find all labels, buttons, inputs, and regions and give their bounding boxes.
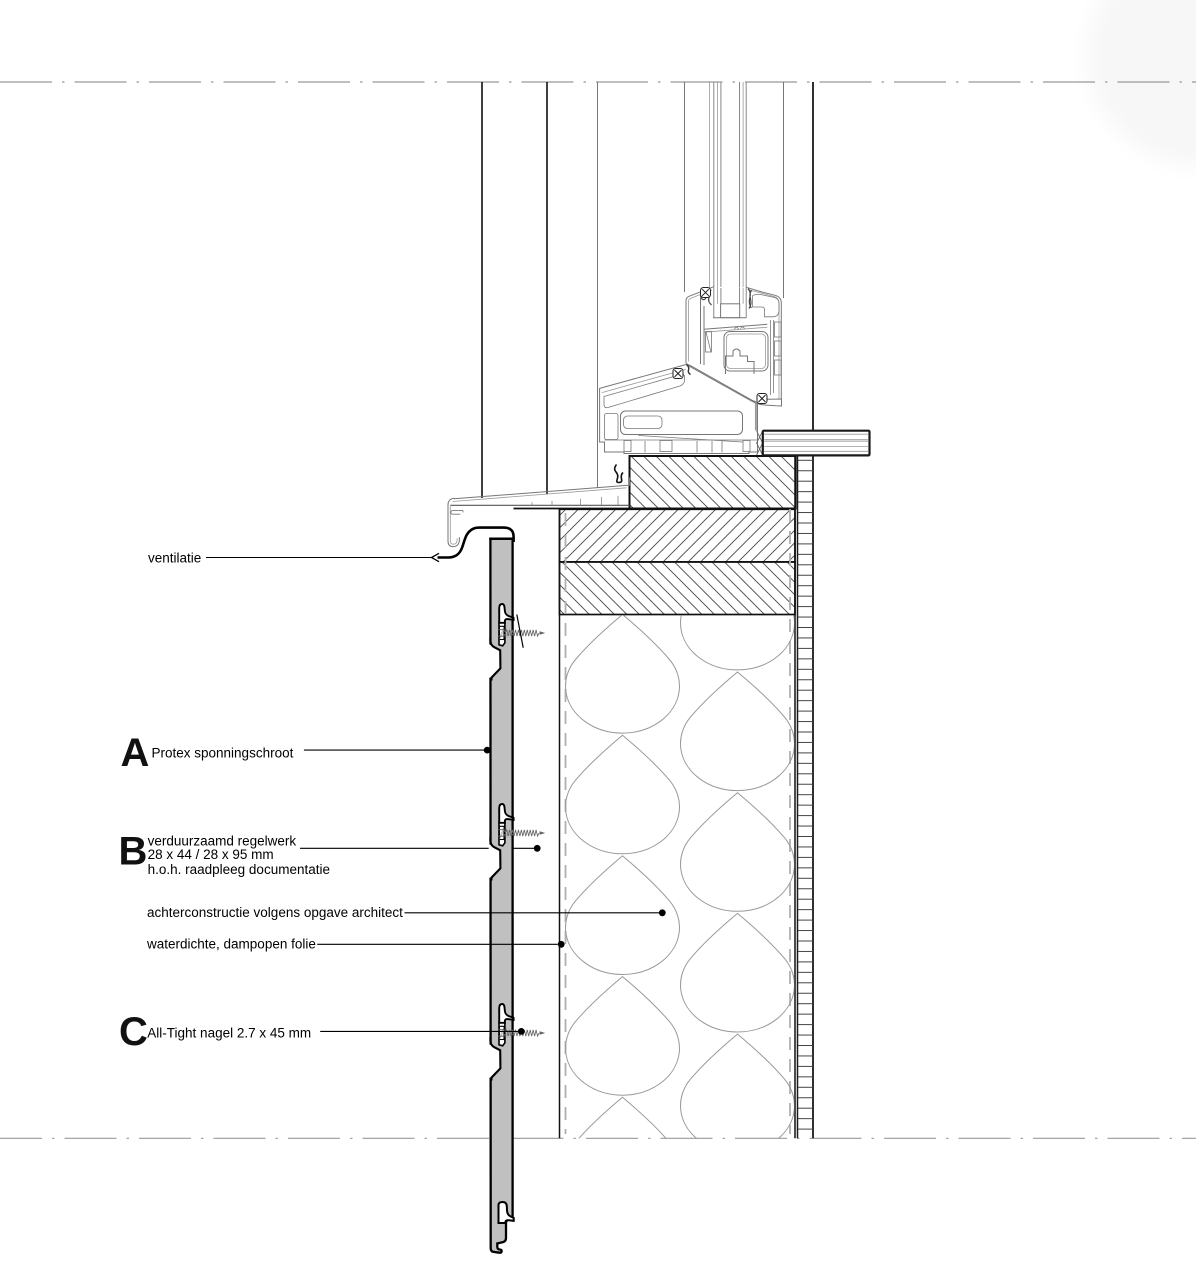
svg-text:waterdichte, dampopen folie: waterdichte, dampopen folie	[146, 936, 316, 951]
svg-text:B: B	[119, 830, 148, 874]
svg-text:Protex sponningschroot: Protex sponningschroot	[152, 745, 294, 760]
svg-text:achterconstructie volgens opga: achterconstructie volgens opgave archite…	[147, 905, 403, 920]
svg-text:C: C	[119, 1010, 148, 1054]
svg-text:h.o.h. raadpleeg documentatie: h.o.h. raadpleeg documentatie	[148, 862, 330, 877]
svg-text:28 x 44 / 28 x 95 mm: 28 x 44 / 28 x 95 mm	[148, 847, 274, 862]
svg-text:A: A	[121, 731, 150, 775]
svg-text:ventilatie: ventilatie	[148, 550, 201, 565]
svg-text:All-Tight nagel 2.7 x 45 mm: All-Tight nagel 2.7 x 45 mm	[147, 1025, 311, 1040]
